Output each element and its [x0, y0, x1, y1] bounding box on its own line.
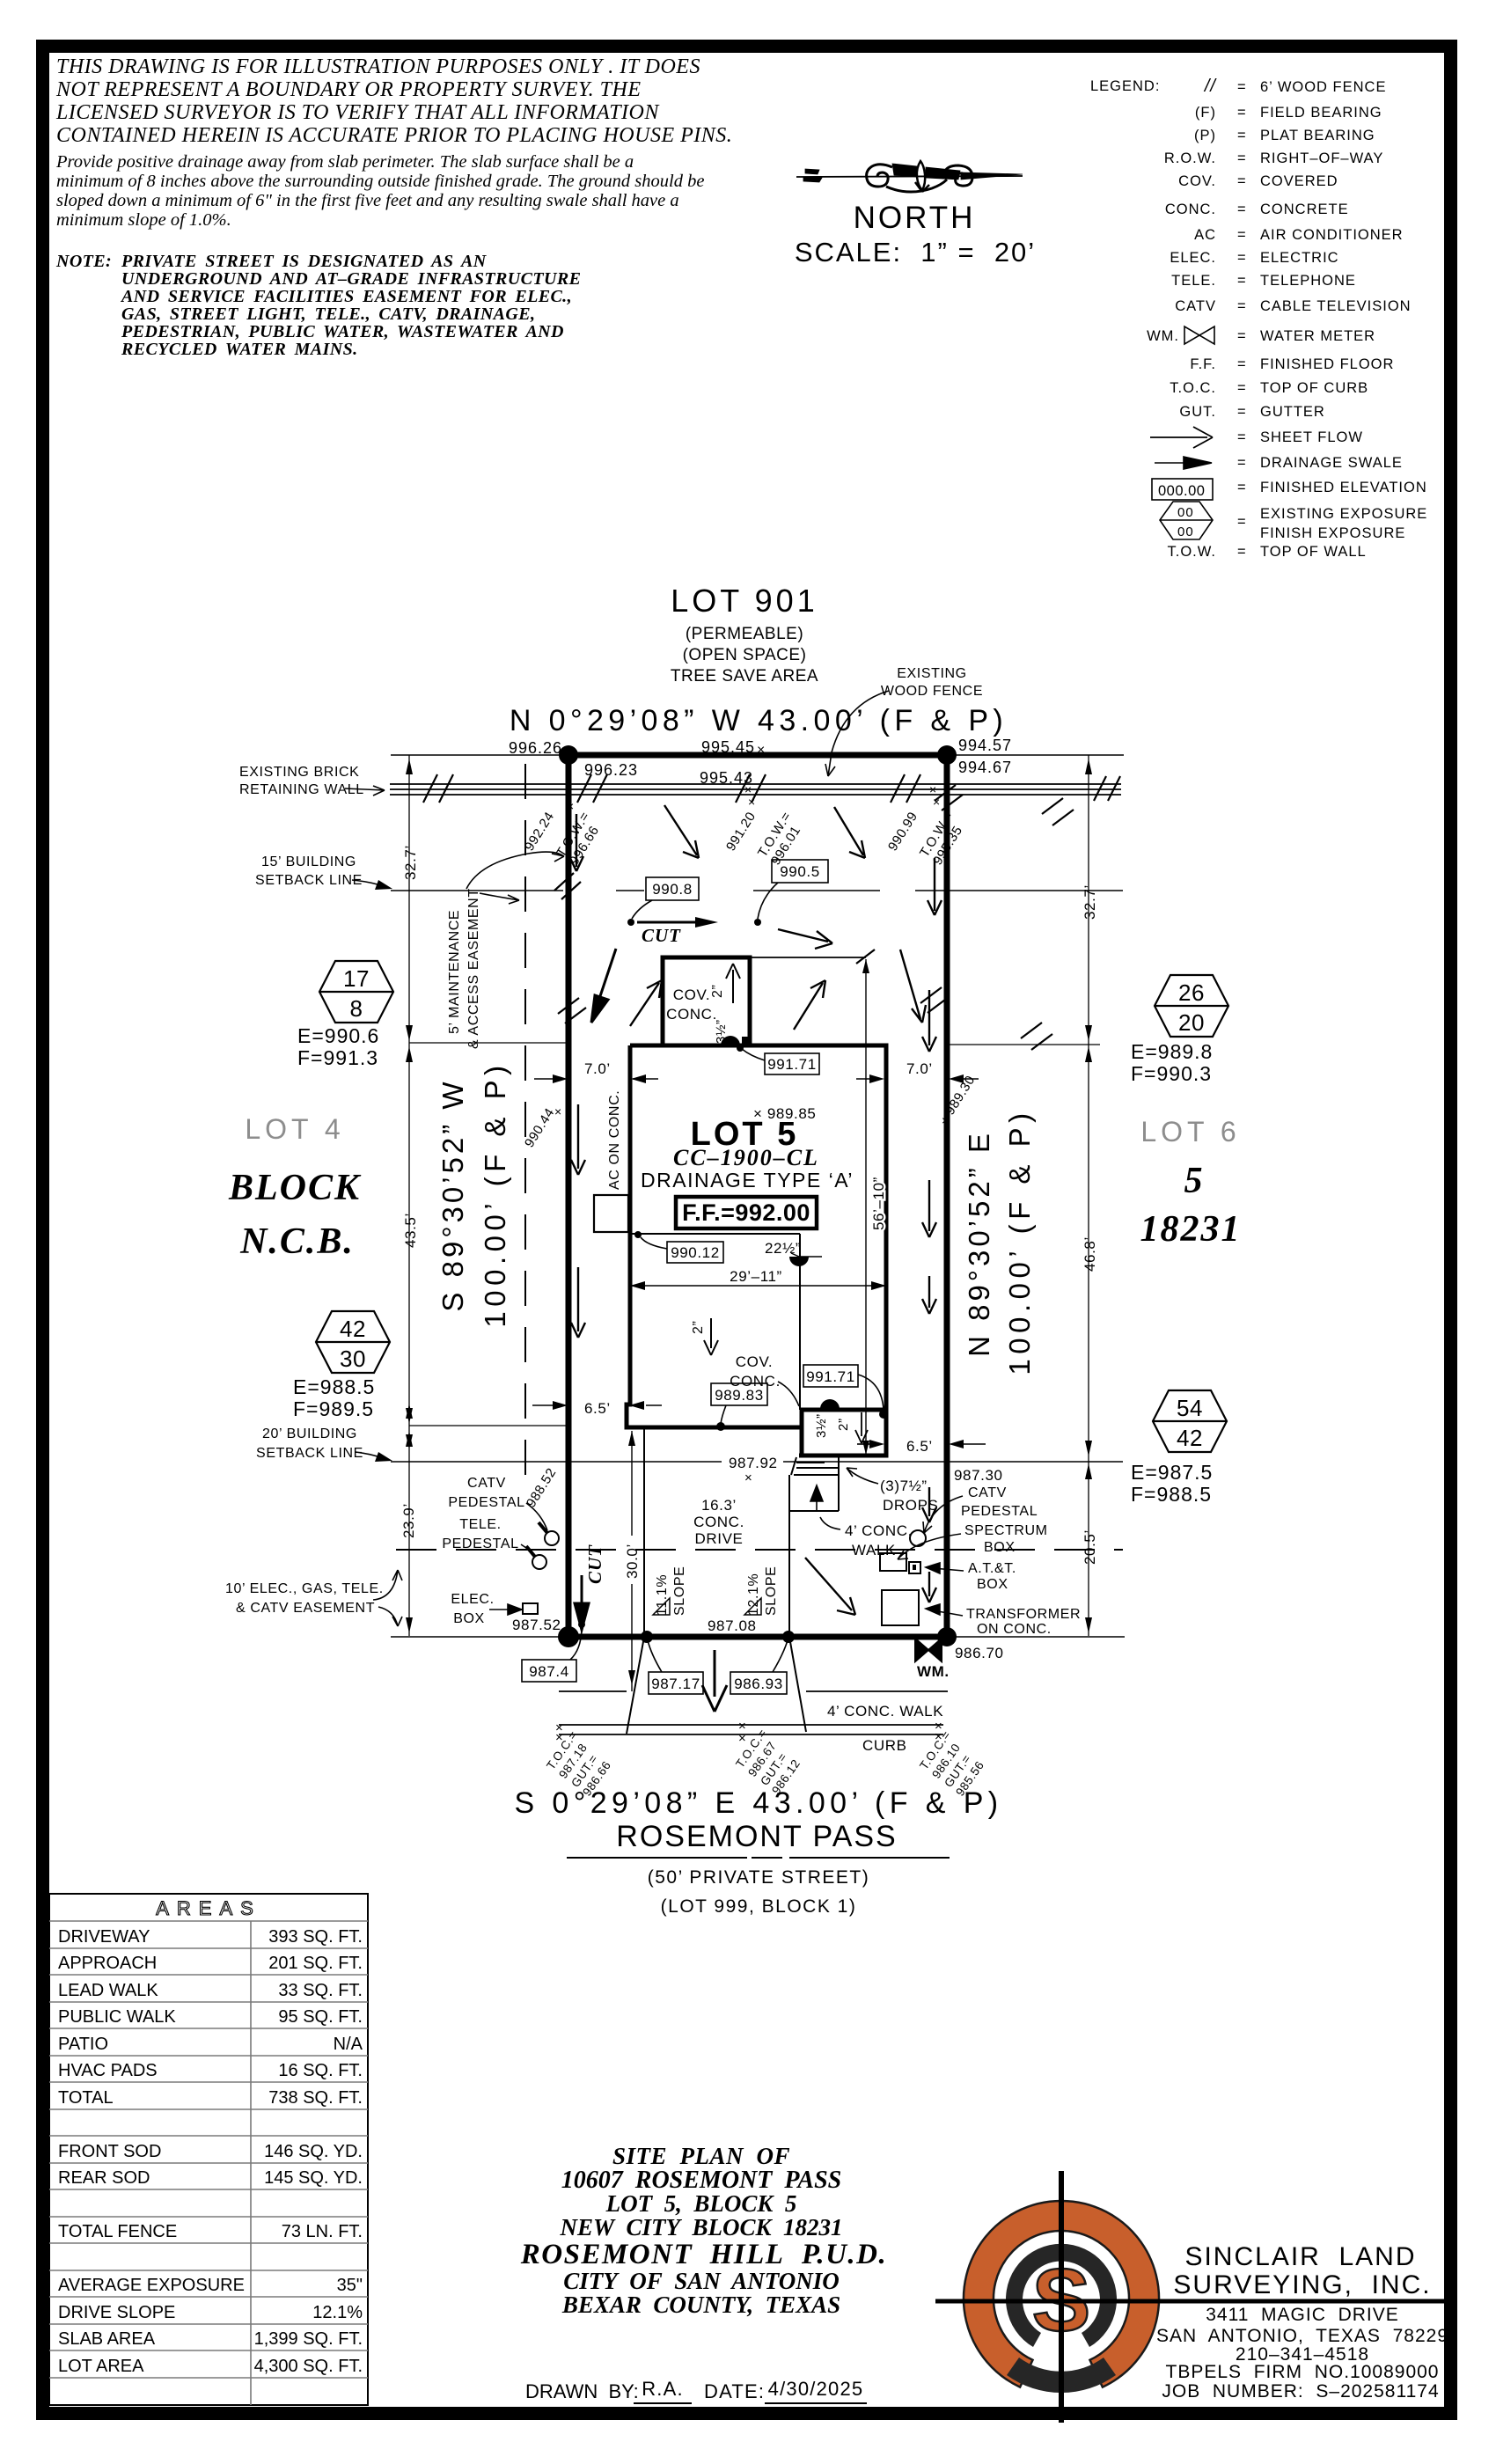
- svg-text:EXISTING BRICK: EXISTING BRICK: [239, 765, 359, 780]
- svg-text:4’ CONC. WALK: 4’ CONC. WALK: [827, 1703, 943, 1720]
- svg-text:LOT 4: LOT 4: [245, 1113, 344, 1145]
- svg-text:×: ×: [567, 799, 575, 813]
- svg-text:E=987.5: E=987.5: [1131, 1461, 1213, 1484]
- svg-text:5: 5: [1184, 1161, 1203, 1201]
- svg-text:BLOCK: BLOCK: [228, 1168, 362, 1208]
- svg-text:R.A.: R.A.: [642, 2378, 684, 2400]
- svg-text:=: =: [1237, 328, 1247, 344]
- svg-text:N/A: N/A: [334, 2035, 363, 2054]
- svg-text:E=990.6: E=990.6: [297, 1024, 379, 1047]
- svg-text:26: 26: [1178, 979, 1205, 1006]
- svg-text:4/30/2025: 4/30/2025: [768, 2378, 864, 2400]
- svg-text:SETBACK LINE: SETBACK LINE: [255, 873, 363, 888]
- svg-text:S 89°30’52” W: S 89°30’52” W: [436, 1078, 469, 1311]
- svg-text:(50’ PRIVATE STREET): (50’ PRIVATE STREET): [648, 1867, 869, 1888]
- svg-text:S 0°29’08” E 43.00’ (F & P): S 0°29’08” E 43.00’ (F & P): [515, 1786, 1003, 1820]
- svg-text:6.5’: 6.5’: [584, 1400, 611, 1417]
- svg-text:×: ×: [943, 1458, 951, 1472]
- svg-text:SINCLAIR LAND: SINCLAIR LAND: [1184, 2242, 1416, 2271]
- svg-text:CONTAINED HEREIN IS ACCURATE P: CONTAINED HEREIN IS ACCURATE PRIOR TO PL…: [56, 124, 732, 147]
- svg-text:3½”: 3½”: [714, 1019, 729, 1044]
- svg-text:990.5: 990.5: [780, 863, 820, 880]
- svg-text:15’ BUILDING: 15’ BUILDING: [261, 854, 356, 869]
- svg-text:WM.: WM.: [917, 1663, 950, 1680]
- svg-text:NORTH: NORTH: [854, 201, 976, 235]
- svg-text:18231: 18231: [1140, 1209, 1242, 1250]
- svg-text:=: =: [1237, 404, 1247, 420]
- svg-text:TREE SAVE AREA: TREE SAVE AREA: [671, 667, 818, 686]
- svg-text:8: 8: [349, 995, 363, 1022]
- svg-text:×: ×: [554, 1104, 562, 1118]
- svg-text:×: ×: [929, 782, 937, 796]
- svg-text:990.8: 990.8: [652, 881, 693, 898]
- svg-text:NOT REPRESENT A BOUNDARY OR PR: NOT REPRESENT A BOUNDARY OR PROPERTY SUR…: [55, 78, 642, 101]
- svg-text:(PERMEABLE): (PERMEABLE): [686, 625, 803, 643]
- svg-text:=: =: [1237, 480, 1247, 495]
- svg-text:N.C.B.: N.C.B.: [239, 1221, 355, 1262]
- svg-text:46.8’: 46.8’: [1082, 1236, 1098, 1272]
- svg-text:CONC.: CONC.: [666, 1006, 717, 1023]
- svg-text:7.0’: 7.0’: [584, 1060, 611, 1077]
- svg-text:986.93: 986.93: [734, 1676, 783, 1692]
- svg-text:TOTAL FENCE: TOTAL FENCE: [58, 2222, 177, 2241]
- svg-text:20.5’: 20.5’: [1082, 1529, 1098, 1565]
- svg-text:BOX: BOX: [984, 1540, 1016, 1555]
- svg-text:PATIO: PATIO: [58, 2035, 108, 2054]
- svg-text:=: =: [1237, 150, 1247, 166]
- svg-text:=: =: [1237, 455, 1247, 471]
- svg-text:F.F.: F.F.: [1190, 356, 1216, 372]
- svg-text:F=988.5: F=988.5: [1131, 1483, 1212, 1506]
- svg-text:COVERED: COVERED: [1260, 173, 1338, 189]
- svg-text:00: 00: [1177, 505, 1194, 520]
- svg-text:(3)7½”: (3)7½”: [880, 1478, 928, 1494]
- svg-text:AC: AC: [1194, 227, 1216, 243]
- svg-text:=: =: [1237, 298, 1247, 314]
- svg-text:42: 42: [1177, 1425, 1203, 1451]
- svg-text:×: ×: [744, 1470, 752, 1485]
- svg-text:5’ MAINTENANCE: 5’ MAINTENANCE: [447, 910, 462, 1034]
- svg-text:3½”: 3½”: [814, 1413, 829, 1438]
- svg-text:AREAS: AREAS: [156, 1897, 261, 1919]
- svg-text:(OPEN SPACE): (OPEN SPACE): [683, 646, 807, 664]
- svg-text:10’ ELEC., GAS, TELE.: 10’ ELEC., GAS, TELE.: [225, 1581, 384, 1596]
- svg-text:RETAINING WALL: RETAINING WALL: [239, 782, 364, 797]
- svg-text:23.9’: 23.9’: [400, 1503, 417, 1538]
- svg-text:AVERAGE EXPOSURE: AVERAGE EXPOSURE: [58, 2276, 245, 2295]
- svg-text:NEW CITY BLOCK 18231: NEW CITY BLOCK 18231: [559, 2214, 842, 2240]
- svg-text:R.O.W.: R.O.W.: [1164, 150, 1216, 166]
- svg-text:× 989.85: × 989.85: [753, 1105, 816, 1122]
- svg-text:CUT: CUT: [642, 925, 681, 946]
- svg-text:00: 00: [1177, 524, 1194, 539]
- svg-text:JOB NUMBER: S–202581174: JOB NUMBER: S–202581174: [1162, 2381, 1439, 2402]
- svg-text:F=991.3: F=991.3: [297, 1046, 378, 1069]
- svg-text:GUTTER: GUTTER: [1260, 404, 1325, 420]
- svg-text:COV.: COV.: [673, 986, 710, 1003]
- svg-text:LICENSED SURVEYOR IS TO VERIFY: LICENSED SURVEYOR IS TO VERIFY THAT ALL …: [55, 101, 660, 124]
- svg-text:PEDESTAL: PEDESTAL: [442, 1536, 518, 1551]
- svg-text:AND SERVICE FACILITIES EASEMEN: AND SERVICE FACILITIES EASEMENT FOR ELEC…: [120, 287, 572, 306]
- svg-text:000.00: 000.00: [1158, 483, 1205, 499]
- svg-text:11.1%: 11.1%: [655, 1574, 670, 1616]
- svg-text:20’ BUILDING: 20’ BUILDING: [262, 1426, 357, 1441]
- svg-text:SPECTRUM: SPECTRUM: [964, 1523, 1048, 1538]
- svg-text:43.5’: 43.5’: [402, 1213, 419, 1248]
- svg-text:Provide positive drainage away: Provide positive drainage away from slab…: [55, 152, 634, 172]
- svg-text:145 SQ. YD.: 145 SQ. YD.: [264, 2168, 363, 2188]
- svg-text:LOT 5, BLOCK 5: LOT 5, BLOCK 5: [605, 2190, 797, 2217]
- svg-text:CATV: CATV: [467, 1476, 506, 1491]
- svg-text:16 SQ. FT.: 16 SQ. FT.: [278, 2061, 363, 2080]
- svg-text:DRAWN BY:: DRAWN BY:: [525, 2380, 639, 2402]
- svg-text:COV.: COV.: [1178, 173, 1216, 189]
- svg-text:CATV: CATV: [968, 1485, 1007, 1500]
- svg-text:994.57: 994.57: [958, 737, 1012, 754]
- svg-text:987.08: 987.08: [708, 1617, 757, 1634]
- svg-text:SURVEYING, INC.: SURVEYING, INC.: [1173, 2270, 1431, 2299]
- svg-text:SETBACK LINE: SETBACK LINE: [256, 1446, 363, 1461]
- svg-text:42: 42: [340, 1316, 366, 1342]
- svg-text:22½”: 22½”: [765, 1240, 801, 1257]
- svg-text:146 SQ. YD.: 146 SQ. YD.: [264, 2142, 363, 2161]
- svg-text:LOT AREA: LOT AREA: [58, 2357, 144, 2376]
- svg-text:2”: 2”: [710, 985, 725, 998]
- svg-text:SLOPE: SLOPE: [764, 1566, 779, 1616]
- svg-text:UNDERGROUND AND AT–GRADE INFRA: UNDERGROUND AND AT–GRADE INFRASTRUCTURE: [121, 269, 581, 289]
- svg-text:990.12: 990.12: [671, 1244, 720, 1261]
- svg-text:100.00’ (F & P): 100.00’ (F & P): [479, 1060, 511, 1327]
- svg-text:DRIVE: DRIVE: [695, 1530, 744, 1547]
- svg-text:SCALE: 1” = 20’: SCALE: 1” = 20’: [795, 237, 1036, 268]
- svg-text:TOP OF WALL: TOP OF WALL: [1260, 544, 1367, 560]
- svg-text:WATER METER: WATER METER: [1260, 328, 1375, 344]
- svg-text:T.O.W.: T.O.W.: [1168, 544, 1217, 560]
- svg-text:SITE PLAN OF: SITE PLAN OF: [612, 2143, 790, 2169]
- svg-text:LEAD WALK: LEAD WALK: [58, 1981, 158, 2000]
- svg-text:996.26: 996.26: [509, 739, 562, 757]
- svg-text:54: 54: [1177, 1395, 1203, 1421]
- svg-text:=: =: [1237, 250, 1247, 266]
- svg-text:991.71: 991.71: [767, 1056, 817, 1073]
- svg-text:TOTAL: TOTAL: [58, 2088, 114, 2108]
- svg-text:N 0°29’08” W 43.00’ (F & P): N 0°29’08” W 43.00’ (F & P): [510, 704, 1008, 737]
- svg-text:PRIVATE STREET IS DESIGNATED A: PRIVATE STREET IS DESIGNATED AS AN: [121, 252, 488, 271]
- svg-text:CATV: CATV: [1175, 298, 1216, 314]
- svg-text:F=990.3: F=990.3: [1131, 1062, 1212, 1085]
- svg-text:RIGHT–OF–WAY: RIGHT–OF–WAY: [1260, 150, 1383, 166]
- svg-text:×: ×: [933, 795, 941, 809]
- svg-text:AC ON CONC.: AC ON CONC.: [607, 1090, 622, 1190]
- svg-text:(LOT 999, BLOCK 1): (LOT 999, BLOCK 1): [661, 1896, 857, 1917]
- svg-text:CC–1900–CL: CC–1900–CL: [673, 1145, 819, 1170]
- svg-text:PLAT BEARING: PLAT BEARING: [1260, 128, 1375, 143]
- svg-text:DRIVEWAY: DRIVEWAY: [58, 1927, 150, 1947]
- svg-text:994.67: 994.67: [958, 759, 1012, 776]
- svg-text:PUBLIC WALK: PUBLIC WALK: [58, 2007, 176, 2027]
- svg-text:HVAC PADS: HVAC PADS: [58, 2061, 158, 2080]
- svg-text://: //: [1203, 77, 1218, 96]
- svg-text:987.52: 987.52: [512, 1617, 561, 1633]
- svg-text:996.23: 996.23: [584, 761, 638, 779]
- svg-text:986.70: 986.70: [955, 1645, 1004, 1661]
- svg-text:=: =: [1237, 429, 1247, 445]
- svg-text:989.83: 989.83: [715, 1387, 764, 1404]
- svg-text:987.4: 987.4: [529, 1663, 569, 1680]
- svg-text:100.00’ (F & P): 100.00’ (F & P): [1003, 1108, 1036, 1375]
- svg-text:1,399 SQ. FT.: 1,399 SQ. FT.: [254, 2329, 363, 2349]
- svg-text:sloped down a minimum of 6" in: sloped down a minimum of 6" in the first…: [56, 191, 679, 210]
- svg-text:REAR SOD: REAR SOD: [58, 2168, 150, 2188]
- svg-text:NOTE:: NOTE:: [55, 252, 112, 271]
- svg-text:T.O.C.: T.O.C.: [1170, 380, 1216, 396]
- svg-text:FINISH EXPOSURE: FINISH EXPOSURE: [1260, 525, 1405, 541]
- svg-text:ELECTRIC: ELECTRIC: [1260, 250, 1339, 266]
- svg-text:WM.: WM.: [1147, 328, 1179, 344]
- svg-text:E=988.5: E=988.5: [293, 1375, 375, 1398]
- svg-text:×: ×: [738, 1731, 746, 1746]
- svg-text:4,300 SQ. FT.: 4,300 SQ. FT.: [254, 2357, 363, 2376]
- svg-text:F=989.5: F=989.5: [293, 1397, 374, 1420]
- svg-text:FINISHED FLOOR: FINISHED FLOOR: [1260, 356, 1394, 372]
- svg-text:COV.: COV.: [736, 1353, 773, 1370]
- svg-text:& ACCESS EASEMENT: & ACCESS EASEMENT: [466, 888, 481, 1049]
- svg-text:ROSEMONT PASS: ROSEMONT PASS: [616, 1820, 897, 1853]
- svg-text:CONCRETE: CONCRETE: [1260, 202, 1349, 217]
- svg-text:N 89°30’52” E: N 89°30’52” E: [963, 1130, 995, 1357]
- svg-text:20: 20: [1178, 1009, 1205, 1036]
- svg-text:32.7’: 32.7’: [402, 845, 419, 880]
- svg-text:THIS DRAWING IS FOR ILLUSTRATI: THIS DRAWING IS FOR ILLUSTRATION PURPOSE…: [56, 55, 700, 78]
- svg-text:minimum slope of 1.0%.: minimum slope of 1.0%.: [56, 210, 231, 230]
- svg-text:CONC.: CONC.: [1165, 202, 1216, 217]
- svg-text:AIR CONDITIONER: AIR CONDITIONER: [1260, 227, 1404, 243]
- svg-text:& CATV EASEMENT: & CATV EASEMENT: [236, 1601, 375, 1616]
- svg-text:4’ CONC.: 4’ CONC.: [845, 1522, 913, 1539]
- svg-text:minimum of 8 inches above the: minimum of 8 inches above the surroundin…: [56, 172, 704, 191]
- svg-text:(F): (F): [1195, 105, 1216, 121]
- svg-text:DRAINAGE SWALE: DRAINAGE SWALE: [1260, 455, 1403, 471]
- svg-text:SLOPE: SLOPE: [672, 1566, 687, 1616]
- svg-text:=: =: [1237, 514, 1247, 530]
- svg-text:987.17: 987.17: [651, 1676, 700, 1692]
- svg-text:CABLE TELEVISION: CABLE TELEVISION: [1260, 298, 1412, 314]
- svg-text:CUT: CUT: [584, 1544, 605, 1584]
- svg-text:=: =: [1237, 227, 1247, 243]
- svg-text:DATE:: DATE:: [704, 2380, 765, 2402]
- svg-text:73 LN. FT.: 73 LN. FT.: [282, 2222, 363, 2241]
- svg-text:PEDESTRIAN, PUBLIC WATER, WAST: PEDESTRIAN, PUBLIC WATER, WASTEWATER AND: [121, 322, 564, 341]
- svg-text:35": 35": [337, 2276, 363, 2295]
- svg-text:CONC.: CONC.: [693, 1514, 744, 1530]
- svg-text:×: ×: [942, 1113, 950, 1127]
- svg-text:TOP OF CURB: TOP OF CURB: [1260, 380, 1368, 396]
- svg-text:APPROACH: APPROACH: [58, 1954, 157, 1973]
- svg-text:=: =: [1237, 380, 1247, 396]
- svg-text:29’–11”: 29’–11”: [730, 1268, 782, 1285]
- svg-text:EXISTING EXPOSURE: EXISTING EXPOSURE: [1260, 506, 1427, 522]
- svg-text:991.71: 991.71: [806, 1368, 855, 1385]
- svg-text:12.1%: 12.1%: [312, 2303, 363, 2322]
- svg-text:WOOD FENCE: WOOD FENCE: [881, 684, 983, 699]
- svg-text:TRANSFORMER: TRANSFORMER: [966, 1607, 1081, 1622]
- svg-text:17: 17: [343, 965, 370, 992]
- svg-text:GUT.: GUT.: [1179, 404, 1216, 420]
- svg-text:=: =: [1237, 202, 1247, 217]
- svg-text:33 SQ. FT.: 33 SQ. FT.: [278, 1981, 363, 2000]
- svg-text:7.0’: 7.0’: [906, 1060, 933, 1077]
- svg-text:DRIVE SLOPE: DRIVE SLOPE: [58, 2303, 175, 2322]
- svg-text:CURB: CURB: [862, 1737, 907, 1754]
- svg-text:SHEET FLOW: SHEET FLOW: [1260, 429, 1363, 445]
- svg-text:2”: 2”: [691, 1321, 706, 1334]
- svg-text:=: =: [1237, 173, 1247, 189]
- svg-text:ON CONC.: ON CONC.: [977, 1622, 1052, 1637]
- svg-text:56’–10”: 56’–10”: [870, 1177, 887, 1230]
- svg-text:SLAB AREA: SLAB AREA: [58, 2329, 156, 2349]
- svg-text:×: ×: [744, 782, 752, 796]
- svg-text:ELEC.: ELEC.: [1170, 250, 1216, 266]
- svg-text:A.T.&T.: A.T.&T.: [968, 1561, 1016, 1576]
- svg-text:FINISHED ELEVATION: FINISHED ELEVATION: [1260, 480, 1427, 495]
- svg-text:BOX: BOX: [453, 1611, 485, 1626]
- svg-text:=: =: [1237, 105, 1247, 121]
- svg-text:393 SQ. FT.: 393 SQ. FT.: [268, 1927, 363, 1947]
- svg-text:987.30: 987.30: [954, 1467, 1003, 1484]
- svg-text:CITY OF SAN ANTONIO: CITY OF SAN ANTONIO: [563, 2268, 840, 2294]
- svg-text:LOT 901: LOT 901: [671, 583, 818, 619]
- svg-text:PEDESTAL: PEDESTAL: [961, 1504, 1038, 1519]
- svg-text:=: =: [1237, 544, 1247, 560]
- svg-text:×: ×: [748, 795, 756, 809]
- svg-text:TBPELS FIRM NO.10089000: TBPELS FIRM NO.10089000: [1166, 2362, 1440, 2382]
- svg-text:2”: 2”: [836, 1418, 851, 1431]
- svg-text:3411 MAGIC DRIVE: 3411 MAGIC DRIVE: [1206, 2305, 1399, 2325]
- svg-text:32.7’: 32.7’: [1082, 884, 1098, 920]
- svg-text:ELEC.: ELEC.: [451, 1592, 494, 1607]
- svg-text:FIELD BEARING: FIELD BEARING: [1260, 105, 1382, 121]
- svg-text:RECYCLED WATER MAINS.: RECYCLED WATER MAINS.: [121, 340, 358, 359]
- svg-text:=: =: [1237, 79, 1247, 95]
- svg-text:30: 30: [340, 1346, 366, 1372]
- svg-text:F.F.=992.00: F.F.=992.00: [682, 1199, 810, 1226]
- svg-text:BOX: BOX: [977, 1577, 1008, 1592]
- svg-text:ROSEMONT HILL P.U.D.: ROSEMONT HILL P.U.D.: [520, 2239, 888, 2270]
- svg-text:95 SQ. FT.: 95 SQ. FT.: [278, 2007, 363, 2027]
- svg-text:(P): (P): [1194, 128, 1216, 143]
- svg-text:SAN ANTONIO, TEXAS 78229: SAN ANTONIO, TEXAS 78229: [1156, 2326, 1448, 2346]
- svg-text:E=989.8: E=989.8: [1131, 1040, 1213, 1063]
- svg-text:TELE.: TELE.: [1171, 273, 1216, 289]
- svg-text:738 SQ. FT.: 738 SQ. FT.: [268, 2088, 363, 2108]
- svg-text:DRAINAGE TYPE ‘A’: DRAINAGE TYPE ‘A’: [641, 1169, 854, 1192]
- svg-text:16.3’: 16.3’: [701, 1497, 737, 1514]
- svg-text:=: =: [1237, 356, 1247, 372]
- svg-text:6’ WOOD FENCE: 6’ WOOD FENCE: [1260, 79, 1386, 95]
- svg-text:EXISTING: EXISTING: [897, 666, 966, 681]
- svg-text:BEXAR COUNTY, TEXAS: BEXAR COUNTY, TEXAS: [561, 2292, 840, 2318]
- svg-text:201 SQ. FT.: 201 SQ. FT.: [268, 1954, 363, 1973]
- svg-text:=: =: [1237, 128, 1247, 143]
- svg-text:=: =: [1237, 273, 1247, 289]
- svg-text:PEDESTAL: PEDESTAL: [448, 1495, 524, 1510]
- svg-text:LEGEND:: LEGEND:: [1090, 78, 1160, 94]
- svg-text:TELEPHONE: TELEPHONE: [1260, 273, 1356, 289]
- svg-text:FRONT SOD: FRONT SOD: [58, 2142, 161, 2161]
- svg-text:12.1%: 12.1%: [746, 1573, 761, 1616]
- svg-text:987.92: 987.92: [729, 1455, 778, 1471]
- svg-text:LOT 6: LOT 6: [1140, 1116, 1240, 1148]
- svg-text:GAS, STREET LIGHT, TELE., CATV: GAS, STREET LIGHT, TELE., CATV, DRAINAGE…: [121, 304, 535, 324]
- svg-text:TELE.: TELE.: [459, 1517, 501, 1532]
- svg-text:6.5’: 6.5’: [906, 1438, 933, 1455]
